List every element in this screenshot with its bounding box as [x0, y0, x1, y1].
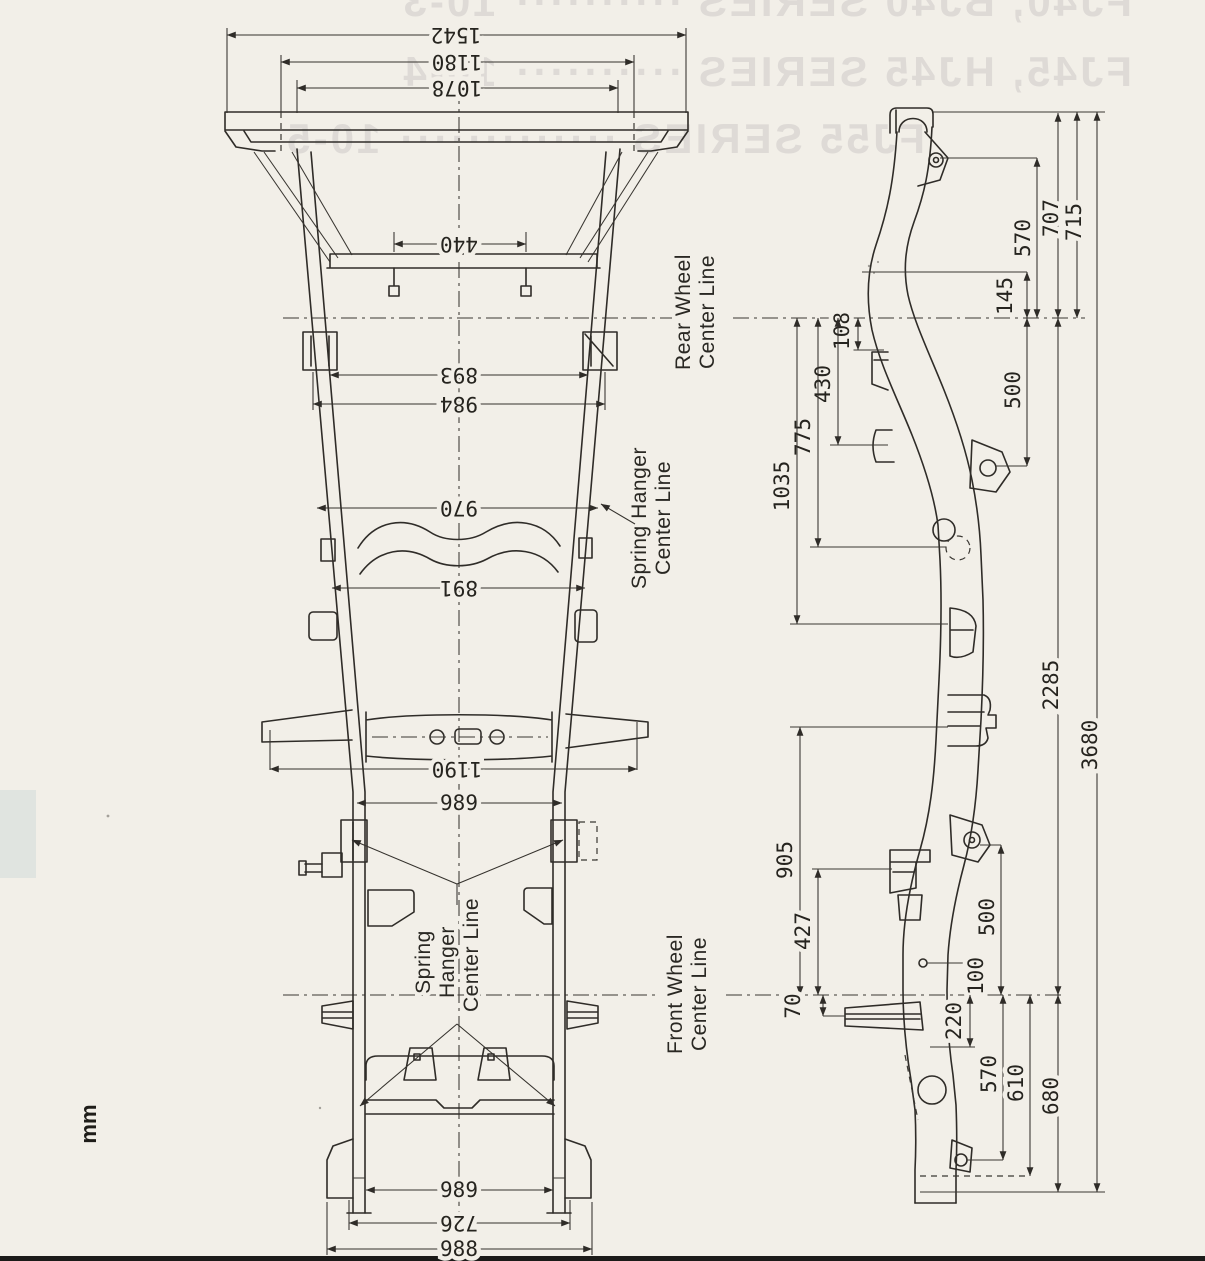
svg-text:100: 100	[964, 957, 988, 995]
dim-108: 108	[830, 312, 858, 350]
engine-mount-bracket	[890, 850, 930, 920]
rail-bracket-430	[873, 430, 894, 462]
svg-text:2285: 2285	[1039, 660, 1063, 711]
rear-wheel-label-1: Rear Wheel	[672, 254, 695, 370]
dim-145: 145	[993, 272, 1027, 318]
dim-715: 715	[1062, 112, 1086, 318]
dim-905: 905	[773, 727, 800, 995]
dim-989-mid: 989	[357, 791, 562, 815]
spring-hanger-front-label-2: Hanger	[436, 926, 459, 998]
dim-891: 891	[332, 576, 585, 600]
svg-text:989: 989	[440, 1178, 478, 1202]
svg-text:1180: 1180	[432, 50, 483, 74]
dim-570-bottom: 570	[977, 995, 1003, 1160]
svg-text:726: 726	[440, 1211, 478, 1235]
front-shackle-bracket	[950, 815, 1001, 862]
svg-text:1542: 1542	[431, 23, 482, 47]
dim-3680: 3680	[1078, 112, 1102, 1192]
double-bracket-side	[948, 695, 996, 746]
dim-2285: 2285	[1039, 318, 1063, 995]
spring-hanger-leader-rear	[352, 840, 563, 905]
dim-440: 440	[394, 232, 526, 256]
body-mount-bracket-side	[950, 608, 976, 657]
svg-text:500: 500	[975, 898, 999, 936]
runningboard-bracket	[970, 440, 1027, 492]
tie-rod-point	[919, 959, 970, 967]
spring-hanger-front-label-3: Center Line	[460, 898, 483, 1012]
dim-989-front: 989	[366, 1178, 553, 1202]
svg-text:427: 427	[791, 912, 815, 950]
spring-hanger-rear-label-1: Spring Hanger	[628, 447, 651, 589]
svg-text:108: 108	[830, 312, 854, 350]
front-wheel-label-1: Front Wheel	[664, 934, 687, 1054]
spring-hanger-leader-front	[360, 1024, 555, 1106]
bleedthrough-index-text: FJ40, BJ40 SERIES ·········· 10-3 FJ45, …	[284, 0, 1132, 162]
dim-70: 70	[781, 993, 823, 1018]
spring-hanger-front-label-1: Spring	[412, 930, 435, 994]
spring-hanger-rear-label-2: Center Line	[652, 461, 675, 575]
dim-100: 100	[964, 957, 988, 995]
page-edge-tab	[0, 790, 36, 878]
upper-crossmember	[327, 254, 600, 296]
svg-text:970: 970	[440, 496, 478, 520]
rear-wheel-label-2: Center Line	[696, 255, 719, 369]
svg-text:707: 707	[1039, 199, 1063, 237]
svg-text:775: 775	[791, 418, 815, 456]
rear-shackle-bracket	[918, 132, 1037, 186]
front-spring-hanger-side	[823, 1002, 923, 1030]
dim-220: 220	[942, 995, 970, 1047]
svg-text:984: 984	[440, 392, 478, 416]
bleed-line-3: FJ55 SERIES ············· 10-5	[284, 115, 925, 162]
svg-text:610: 610	[1004, 1064, 1028, 1102]
dim-1190: 1190	[270, 757, 637, 781]
svg-text:1078: 1078	[432, 76, 483, 100]
page-bottom-edge	[0, 1256, 1205, 1261]
unit-label: mm	[76, 1104, 101, 1143]
front-rail-hole	[905, 1055, 946, 1120]
svg-text:1035: 1035	[770, 461, 794, 512]
plan-view: 440 1542 1180 1078 893	[225, 23, 1085, 1261]
front-bolt-bracket	[920, 1140, 1030, 1176]
annotation-labels: Rear Wheel Center Line Spring Hanger Cen…	[76, 254, 719, 1144]
dim-707: 707	[1039, 113, 1063, 318]
svg-text:893: 893	[440, 363, 478, 387]
side-view: 570 707 715 145 500 108 430 775	[770, 108, 1105, 1203]
svg-text:715: 715	[1062, 203, 1086, 241]
svg-text:500: 500	[1001, 371, 1025, 409]
svg-text:989: 989	[440, 791, 478, 815]
dim-427: 427	[791, 869, 818, 995]
dim-893: 893	[330, 363, 588, 387]
paper-speckles	[107, 85, 1205, 1109]
svg-text:891: 891	[440, 576, 478, 600]
front-crossmember	[366, 1100, 554, 1114]
dim-680: 680	[1039, 995, 1063, 1192]
svg-text:570: 570	[1011, 219, 1035, 257]
dim-610: 610	[1004, 995, 1030, 1176]
dim-775: 775	[791, 318, 818, 547]
svg-text:430: 430	[811, 365, 835, 403]
dim-970: 970	[317, 496, 598, 520]
frame-alignment-drawing: FJ40, BJ40 SERIES ·········· 10-3 FJ45, …	[0, 0, 1205, 1261]
side-rail	[868, 127, 983, 1203]
dim-1035: 1035	[770, 318, 797, 624]
svg-text:70: 70	[781, 993, 805, 1018]
arched-crossmember	[366, 1048, 554, 1080]
svg-text:440: 440	[440, 232, 478, 256]
svg-text:570: 570	[977, 1055, 1001, 1093]
bleed-line-1: FJ40, BJ40 SERIES ·········· 10-3	[401, 0, 1132, 25]
svg-text:3680: 3680	[1078, 720, 1102, 771]
svg-text:145: 145	[993, 277, 1017, 315]
svg-text:680: 680	[1039, 1077, 1063, 1115]
svg-text:1190: 1190	[432, 757, 483, 781]
svg-text:905: 905	[773, 841, 797, 879]
front-wheel-label-2: Center Line	[688, 937, 711, 1051]
svg-text:988: 988	[440, 1237, 478, 1261]
dim-500-upper: 500	[1001, 318, 1027, 466]
svg-text:220: 220	[942, 1002, 966, 1040]
manual-page: FJ40, BJ40 SERIES ·········· 10-3 FJ45, …	[0, 0, 1205, 1261]
